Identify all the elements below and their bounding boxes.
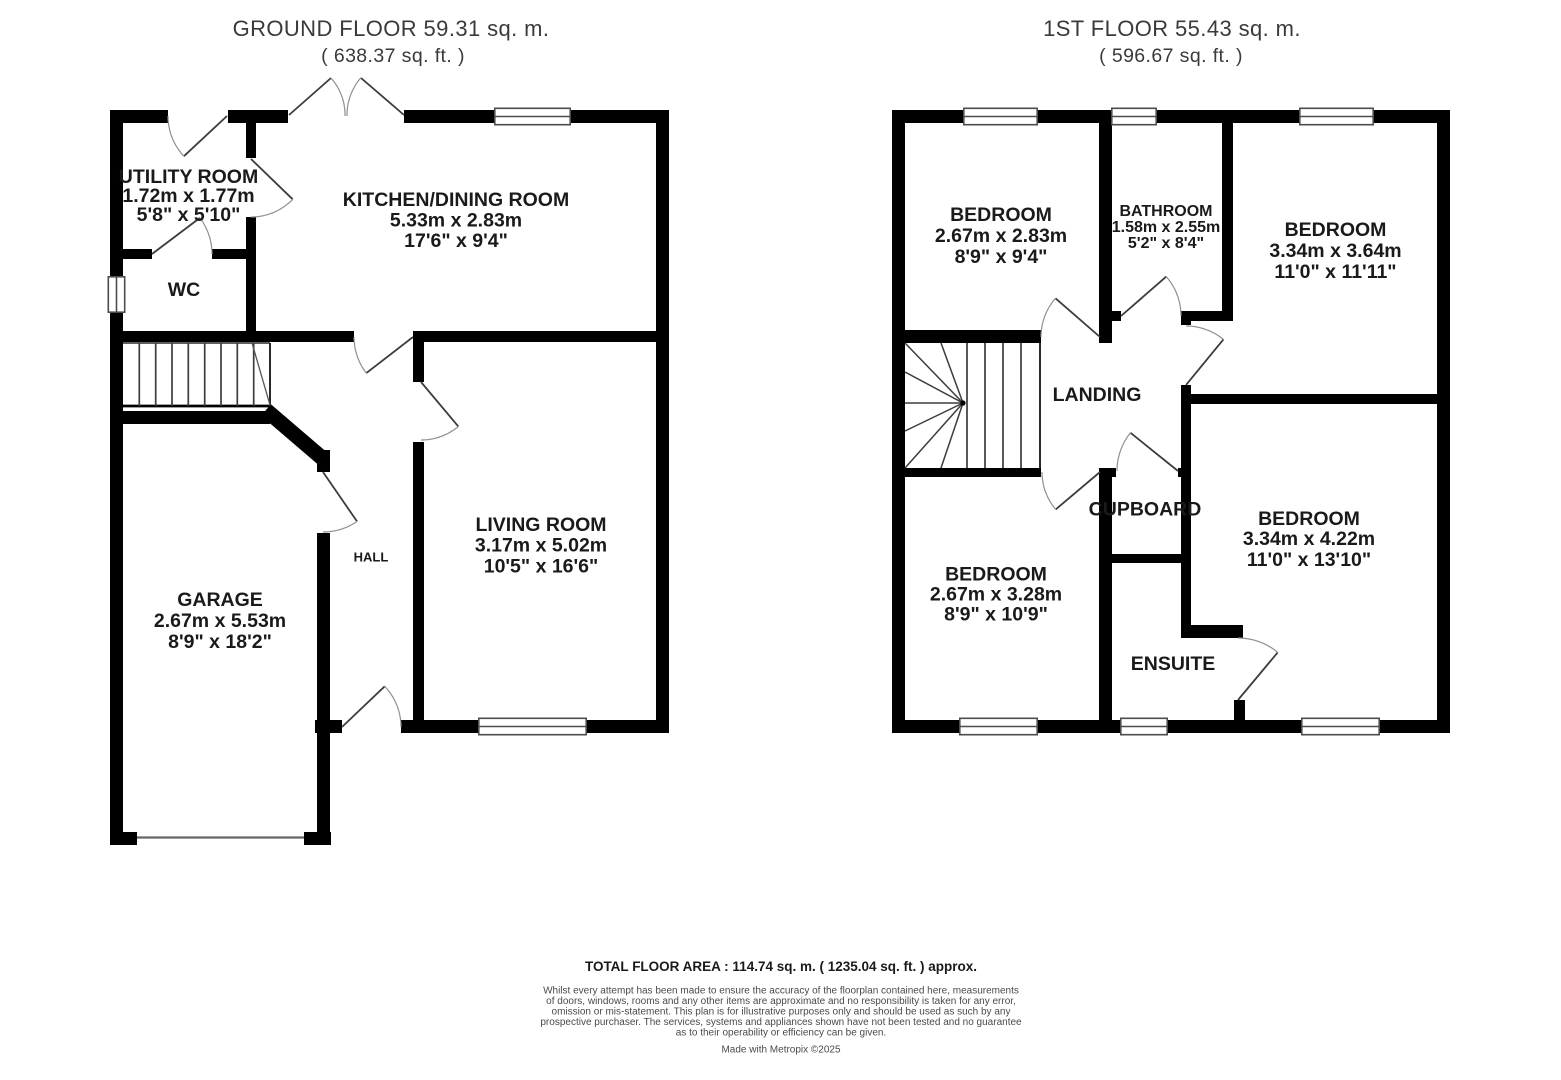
svg-text:1ST FLOOR 55.43 sq. m.: 1ST FLOOR 55.43 sq. m. <box>1043 16 1301 41</box>
svg-text:CUPBOARD: CUPBOARD <box>1089 499 1202 521</box>
svg-text:5'8" x 5'10": 5'8" x 5'10" <box>137 204 241 226</box>
svg-text:2.67m x 3.28m: 2.67m x 3.28m <box>930 584 1062 606</box>
svg-text:LIVING ROOM: LIVING ROOM <box>475 514 606 536</box>
svg-text:Made with Metropix ©2025: Made with Metropix ©2025 <box>721 1045 841 1056</box>
svg-text:11'0" x 11'11": 11'0" x 11'11" <box>1274 261 1396 283</box>
svg-text:1.58m x 2.55m: 1.58m x 2.55m <box>1112 219 1221 236</box>
svg-text:( 638.37 sq. ft. ): ( 638.37 sq. ft. ) <box>321 45 465 67</box>
svg-text:Whilst every attempt has been: Whilst every attempt has been made to en… <box>543 986 1019 997</box>
svg-text:10'5" x 16'6": 10'5" x 16'6" <box>484 556 599 578</box>
svg-text:BATHROOM: BATHROOM <box>1119 203 1212 220</box>
svg-text:as to their operability or eff: as to their operability or efficiency ca… <box>676 1028 887 1039</box>
svg-text:8'9" x 9'4": 8'9" x 9'4" <box>955 246 1048 268</box>
svg-text:WC: WC <box>168 279 201 301</box>
svg-text:3.34m x 3.64m: 3.34m x 3.64m <box>1269 240 1401 262</box>
svg-text:HALL: HALL <box>354 550 389 565</box>
svg-text:ENSUITE: ENSUITE <box>1131 653 1216 675</box>
svg-text:3.17m x 5.02m: 3.17m x 5.02m <box>475 535 607 557</box>
svg-text:BEDROOM: BEDROOM <box>945 564 1047 586</box>
svg-text:( 596.67 sq. ft. ): ( 596.67 sq. ft. ) <box>1099 45 1243 67</box>
svg-text:2.67m x 2.83m: 2.67m x 2.83m <box>935 225 1067 247</box>
svg-text:8'9" x 10'9": 8'9" x 10'9" <box>944 604 1048 626</box>
svg-text:5'2" x 8'4": 5'2" x 8'4" <box>1128 235 1204 252</box>
svg-text:17'6" x 9'4": 17'6" x 9'4" <box>404 230 508 252</box>
svg-text:LANDING: LANDING <box>1053 384 1142 406</box>
svg-text:3.34m x 4.22m: 3.34m x 4.22m <box>1243 528 1375 550</box>
svg-text:GARAGE: GARAGE <box>177 589 263 611</box>
svg-text:GROUND FLOOR 59.31 sq. m.: GROUND FLOOR 59.31 sq. m. <box>233 16 550 41</box>
svg-text:8'9" x 18'2": 8'9" x 18'2" <box>168 631 272 653</box>
svg-text:of doors, windows, rooms and a: of doors, windows, rooms and any other i… <box>546 996 1016 1007</box>
svg-text:5.33m x 2.83m: 5.33m x 2.83m <box>390 210 522 232</box>
svg-text:BEDROOM: BEDROOM <box>950 204 1052 226</box>
svg-text:TOTAL FLOOR AREA : 114.74 sq.: TOTAL FLOOR AREA : 114.74 sq. m. ( 1235.… <box>585 959 977 974</box>
svg-text:BEDROOM: BEDROOM <box>1285 219 1387 241</box>
svg-text:BEDROOM: BEDROOM <box>1258 508 1360 530</box>
svg-text:omission or mis-statement. Thi: omission or mis-statement. This plan is … <box>552 1007 1011 1018</box>
svg-text:11'0" x 13'10": 11'0" x 13'10" <box>1247 549 1371 571</box>
svg-text:2.67m x 5.53m: 2.67m x 5.53m <box>154 610 286 632</box>
svg-text:KITCHEN/DINING ROOM: KITCHEN/DINING ROOM <box>343 189 569 211</box>
svg-text:prospective purchaser. The ser: prospective purchaser. The services, sys… <box>540 1017 1022 1028</box>
